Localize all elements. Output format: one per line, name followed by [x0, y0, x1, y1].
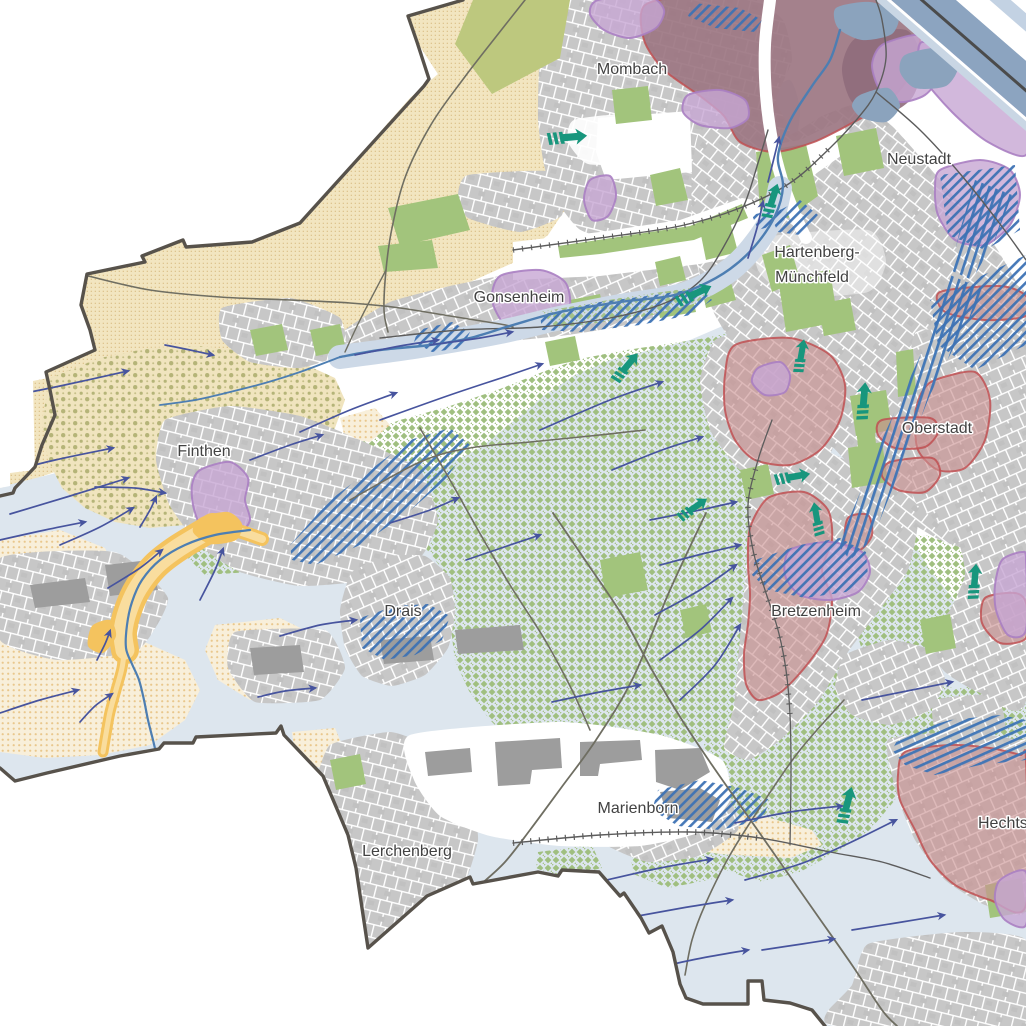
svg-text:Marienborn: Marienborn: [598, 800, 679, 817]
svg-text:Münchfeld: Münchfeld: [775, 269, 849, 286]
svg-text:Mombach: Mombach: [597, 61, 667, 78]
svg-text:Oberstadt: Oberstadt: [902, 420, 973, 437]
svg-text:Bretzenheim: Bretzenheim: [771, 603, 861, 620]
svg-text:Neustadt: Neustadt: [887, 151, 952, 168]
svg-text:Hechtsheim: Hechtsheim: [978, 815, 1026, 832]
svg-text:Lerchenberg: Lerchenberg: [362, 843, 452, 860]
svg-text:Drais: Drais: [384, 603, 421, 620]
svg-text:Gonsenheim: Gonsenheim: [474, 289, 565, 306]
svg-text:Hartenberg-: Hartenberg-: [774, 244, 859, 261]
svg-text:Finthen: Finthen: [177, 443, 230, 460]
